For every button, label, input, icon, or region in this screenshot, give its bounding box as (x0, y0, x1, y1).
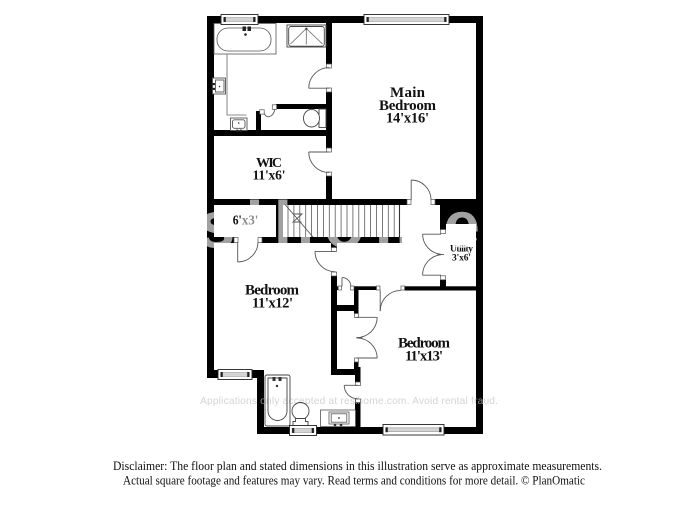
svg-text:11'x6': 11'x6' (253, 168, 286, 183)
svg-text:x3': x3' (242, 214, 259, 229)
svg-text:6': 6' (233, 214, 242, 229)
svg-text:11'x13': 11'x13' (405, 349, 443, 365)
svg-text:Disclaimer: The floor plan and: Disclaimer: The floor plan and stated di… (113, 459, 602, 473)
svg-text:Actual square footage and feat: Actual square footage and features may v… (123, 474, 585, 488)
svg-text:11'x12': 11'x12' (252, 296, 293, 312)
svg-text:resihome: resihome (116, 188, 480, 262)
svg-text:Applications only accepted at: Applications only accepted at resihome.c… (200, 396, 498, 407)
svg-text:14'x16': 14'x16' (386, 111, 429, 127)
